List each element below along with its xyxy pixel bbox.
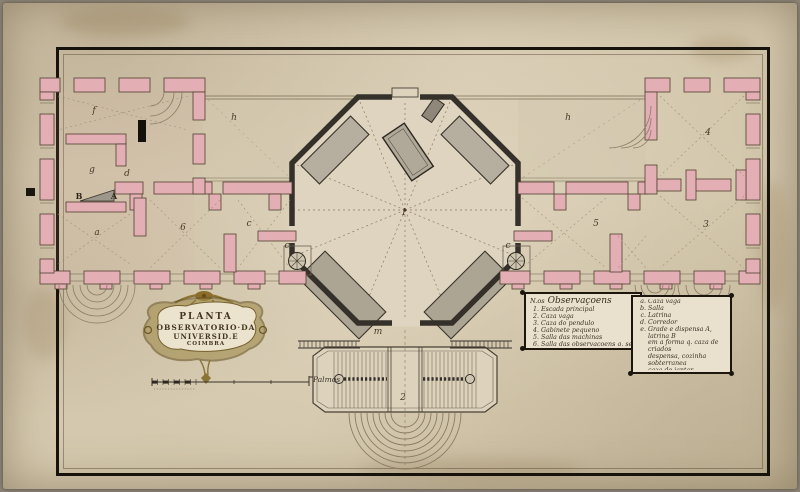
legend-row: ·caza de jantar bbox=[637, 368, 727, 370]
legend-heading: N.osObservaçoens bbox=[530, 296, 637, 306]
right-band-wall bbox=[518, 182, 648, 272]
legend-heading-number: N.os bbox=[530, 297, 545, 305]
legend-row: ·em a forma q. caza de criados bbox=[637, 340, 727, 354]
floor-plan-drawing bbox=[0, 0, 800, 492]
wall-niche bbox=[138, 120, 146, 142]
north-door-step bbox=[392, 88, 418, 97]
legend-row: ·despensa, cozinha sobterranea bbox=[637, 354, 727, 368]
right-block-walls bbox=[645, 78, 760, 273]
scale-bar bbox=[152, 376, 313, 389]
south-staircase bbox=[298, 330, 512, 469]
legend-row: e.Grade e dispensa A, latrina B bbox=[637, 327, 727, 341]
legend-box-letters: a.Caza vagab.Sallac.Latrinad.Corredore.G… bbox=[631, 295, 732, 374]
legend-corner-knob bbox=[520, 290, 525, 295]
legend-corner-knob bbox=[729, 293, 734, 298]
legend-row: 6.Salla das observaçoens q. se faz. bbox=[530, 342, 637, 346]
central-octagon bbox=[284, 88, 530, 339]
scale-unit-label: Palmos bbox=[313, 375, 340, 384]
legend-heading-word: Observaçoens bbox=[548, 296, 612, 306]
legend-corner-knob bbox=[729, 371, 734, 376]
legend-corner-knob bbox=[520, 346, 525, 351]
legend-corner-knob bbox=[628, 371, 633, 376]
scanned-plan-page: { "document_type": "historical architect… bbox=[0, 0, 800, 492]
title-cartouche bbox=[144, 291, 267, 384]
legend-box-numbers: N.osObservaçoens 1.Escada principal2.Caz… bbox=[524, 292, 642, 350]
door-arcs-left-bottom bbox=[59, 285, 135, 323]
margin-mark bbox=[26, 188, 35, 196]
